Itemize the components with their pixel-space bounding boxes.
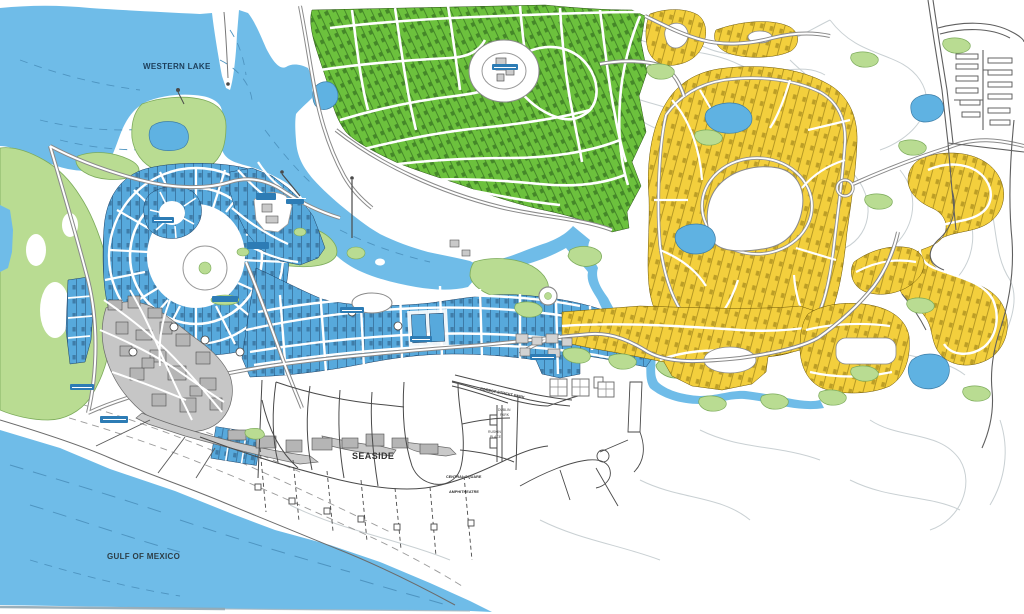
svg-text:GULF OF MEXICO: GULF OF MEXICO <box>107 552 180 561</box>
svg-text:AMPHITHEATRE: AMPHITHEATRE <box>449 490 479 494</box>
svg-text:RUSKIN: RUSKIN <box>488 430 501 434</box>
svg-text:SEASIDE: SEASIDE <box>352 451 394 461</box>
svg-text:PARK: PARK <box>500 413 510 417</box>
svg-text:DUBLIN: DUBLIN <box>498 408 511 412</box>
svg-text:PLACE: PLACE <box>490 435 502 439</box>
svg-text:CENTRAL SQUARE: CENTRAL SQUARE <box>446 475 482 479</box>
svg-text:WESTERN LAKE: WESTERN LAKE <box>143 62 211 71</box>
